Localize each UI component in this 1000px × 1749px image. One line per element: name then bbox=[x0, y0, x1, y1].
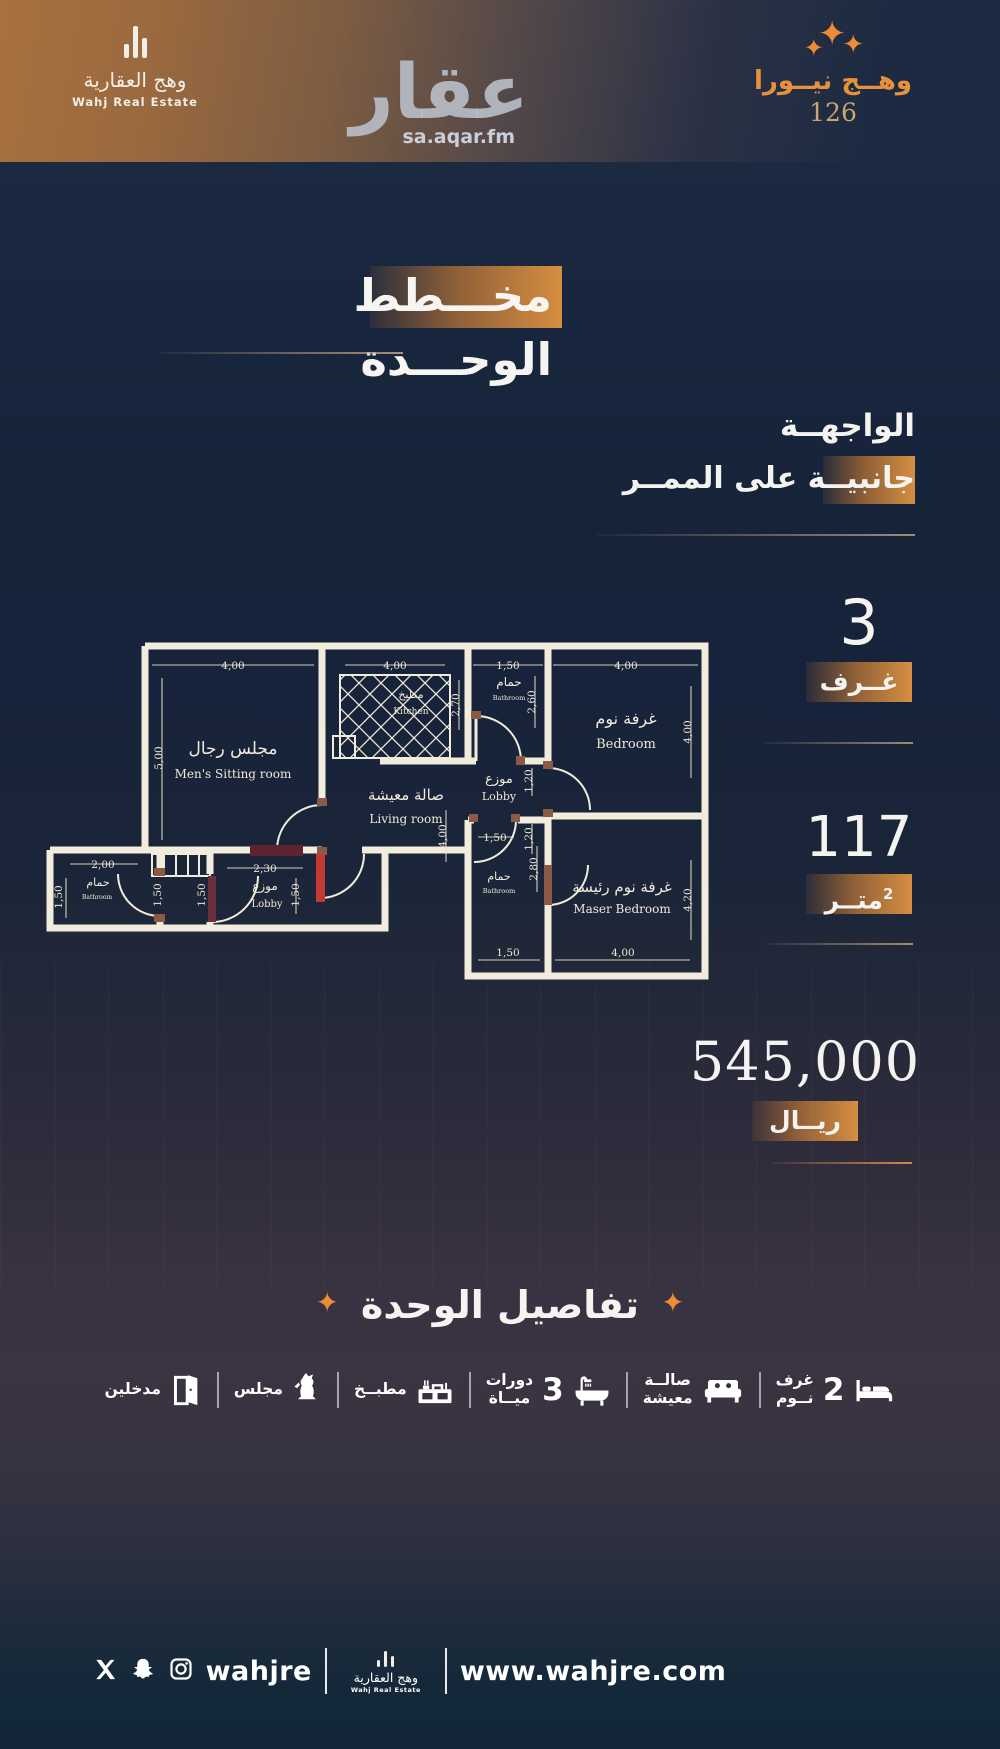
aqar-watermark: عقار sa.aqar.fm bbox=[350, 56, 515, 146]
dim-bedroom-height: 4,00 bbox=[682, 720, 694, 743]
detail-count: 2 bbox=[823, 1372, 845, 1408]
dim-stairs-left: 1,50 bbox=[152, 883, 164, 906]
stat-area: 117 2متــر bbox=[803, 810, 915, 914]
footer-brand-ar: وهج العقارية bbox=[340, 1670, 432, 1685]
detail-label: مجلس bbox=[234, 1381, 283, 1399]
room-sitting-en: Men's Sitting room bbox=[175, 767, 292, 781]
brand-name-ar: وهج العقارية bbox=[55, 68, 215, 92]
dim-sitting-height: 5,00 bbox=[153, 746, 165, 769]
details-heading: ✦تفاصيل الوحدة✦ bbox=[0, 1283, 1000, 1327]
dim-bath-top-width: 1,50 bbox=[496, 660, 519, 672]
room-living-en: Living room bbox=[369, 812, 443, 826]
footer: wahjre وهج العقارية Wahj Real Estate www… bbox=[0, 1648, 820, 1694]
detail-item-living: صالــةمعيشة bbox=[643, 1372, 744, 1408]
dim-sitting-width: 4,00 bbox=[221, 660, 244, 672]
door-icon bbox=[170, 1373, 202, 1408]
dim-annex-lobby-height: 1,50 bbox=[290, 883, 302, 906]
footer-divider bbox=[325, 1648, 327, 1694]
stat-divider-1 bbox=[763, 742, 913, 744]
dim-stairs-right: 1,50 bbox=[196, 883, 208, 906]
detail-label: معيشة bbox=[643, 1390, 693, 1408]
floor-plan: 4,00 4,00 1,50 4,00 5,00 2,70 2,60 4,00 … bbox=[40, 628, 720, 988]
detail-divider bbox=[759, 1372, 761, 1408]
detail-label: مدخلين bbox=[105, 1381, 161, 1399]
detail-item-entrances: مدخلين bbox=[105, 1373, 202, 1408]
kitchen-icon bbox=[416, 1374, 454, 1407]
area-unit: 2متــر bbox=[806, 874, 912, 914]
master-door-leaf bbox=[544, 865, 552, 905]
wahj-bars-icon bbox=[340, 1649, 432, 1667]
dim-lobby-upper: 1,20 bbox=[523, 769, 535, 792]
project-name: وهــج نيــورا bbox=[748, 66, 918, 96]
website-link[interactable]: www.wahjre.com bbox=[460, 1656, 727, 1687]
room-living-ar: صالة معيشة bbox=[368, 786, 444, 804]
room-master-en: Maser Bedroom bbox=[573, 902, 671, 916]
room-bath-top-en: Bathroom bbox=[493, 694, 526, 702]
background-streaks bbox=[0, 960, 1000, 1290]
dim-kitchen-width: 4,00 bbox=[383, 660, 406, 672]
detail-count: 3 bbox=[542, 1372, 564, 1408]
detail-item-bedrooms: 2 غرفنــوم bbox=[776, 1372, 896, 1408]
room-bath-top-ar: حمام bbox=[496, 675, 521, 689]
footer-brand-en: Wahj Real Estate bbox=[340, 1686, 432, 1694]
detail-label: مطبــخ bbox=[354, 1381, 407, 1399]
room-lobby-annex-en: Lobby bbox=[251, 899, 282, 910]
bed-icon bbox=[853, 1375, 895, 1405]
door-lintel bbox=[250, 845, 303, 856]
detail-label: غرف bbox=[776, 1372, 814, 1390]
page-title-text: مخـــطط الوحـــدة bbox=[158, 264, 562, 330]
facade-underline bbox=[597, 534, 915, 536]
header-band: وهج العقارية Wahj Real Estate عقار sa.aq… bbox=[0, 0, 1000, 162]
stat-rooms: 3 غــرف bbox=[803, 592, 915, 702]
social-handle[interactable]: wahjre bbox=[206, 1656, 312, 1687]
footer-divider bbox=[445, 1648, 447, 1694]
dallah-icon bbox=[292, 1372, 322, 1408]
detail-label: نــوم bbox=[776, 1390, 814, 1408]
dim-bath-top-left: 2,70 bbox=[450, 693, 462, 716]
detail-item-baths: 3 دوراتميــاة bbox=[486, 1372, 611, 1408]
project-number: 126 bbox=[748, 98, 918, 127]
room-lobby-ar: موزع bbox=[485, 772, 513, 787]
detail-divider bbox=[469, 1372, 471, 1408]
dim-annex-bath-width: 2,00 bbox=[91, 859, 114, 871]
title-underline bbox=[160, 352, 403, 354]
aqar-logo-text: عقار bbox=[350, 56, 515, 128]
stat-divider-2 bbox=[765, 943, 913, 945]
snapchat-icon[interactable] bbox=[130, 1656, 156, 1686]
detail-divider bbox=[217, 1372, 219, 1408]
rooms-count: 3 bbox=[803, 592, 915, 654]
dim-lobby-lower: 1,20 bbox=[523, 827, 535, 850]
dim-bedroom-width: 4,00 bbox=[614, 660, 637, 672]
detail-label: صالــة bbox=[643, 1372, 693, 1390]
sparkle-stars-icon: ✦✦✦ bbox=[748, 10, 918, 62]
detail-divider bbox=[337, 1372, 339, 1408]
detail-divider bbox=[626, 1372, 628, 1408]
facade-value: جانبيــة على الممــر bbox=[585, 456, 915, 504]
details-row: 2 غرفنــوم صالــةمعيشة 3 دوراتميــاة مطب… bbox=[0, 1372, 1000, 1408]
brand-logo: وهج العقارية Wahj Real Estate bbox=[55, 22, 215, 109]
bathtub-icon bbox=[573, 1374, 611, 1407]
dim-annex-lobby-width: 2,30 bbox=[253, 863, 276, 875]
area-value: 117 bbox=[803, 810, 915, 866]
detail-item-majlis: مجلس bbox=[234, 1372, 322, 1408]
rooms-unit: غــرف bbox=[806, 662, 912, 702]
red-door-leaf bbox=[316, 854, 325, 902]
detail-label: ميــاة bbox=[486, 1390, 533, 1408]
facade-block: الواجهــة جانبيــة على الممــر bbox=[585, 408, 915, 504]
room-master-ar: غرفة نوم رئيسة bbox=[572, 878, 672, 896]
room-bath-annex-ar: حمام bbox=[86, 876, 109, 889]
sofa-icon bbox=[702, 1375, 744, 1405]
diamond-icon: ✦ bbox=[315, 1286, 338, 1319]
brand-name-en: Wahj Real Estate bbox=[55, 95, 215, 109]
room-kitchen-en: Kitchen bbox=[393, 707, 428, 717]
dim-annex-bath-height: 1,50 bbox=[53, 885, 65, 908]
dim-master-width: 4,00 bbox=[611, 947, 634, 959]
dim-master-height: 4,20 bbox=[682, 888, 694, 911]
diamond-icon: ✦ bbox=[661, 1286, 684, 1319]
room-bedroom-en: Bedroom bbox=[596, 737, 656, 752]
area-sup: 2 bbox=[883, 885, 893, 903]
project-badge: ✦✦✦ وهــج نيــورا 126 bbox=[748, 10, 918, 127]
room-bedroom-ar: غرفة نوم bbox=[595, 709, 656, 729]
annex-door-leaf bbox=[208, 876, 216, 922]
room-lobby-en: Lobby bbox=[482, 790, 517, 803]
room-kitchen-ar: مطبخ bbox=[398, 688, 423, 701]
room-lobby-annex-ar: موزع bbox=[252, 879, 278, 894]
footer-brand-logo: وهج العقارية Wahj Real Estate bbox=[340, 1649, 432, 1694]
dim-bottom-small: 1,50 bbox=[496, 947, 519, 959]
dim-bath-bottom-width: 1,50 bbox=[483, 832, 506, 844]
detail-item-kitchen: مطبــخ bbox=[354, 1374, 454, 1407]
dim-bath-bottom-height: 2,80 bbox=[528, 857, 540, 880]
dim-bath-top-right: 2,60 bbox=[526, 690, 538, 713]
room-bath-annex-en: Bathroom bbox=[82, 894, 112, 901]
wahj-bars-icon bbox=[55, 22, 215, 58]
detail-label: دورات bbox=[486, 1372, 533, 1390]
flyer-page: وهج العقارية Wahj Real Estate عقار sa.aq… bbox=[0, 0, 1000, 1749]
instagram-icon[interactable] bbox=[169, 1657, 193, 1685]
x-icon[interactable] bbox=[94, 1658, 117, 1685]
page-title: مخـــطط الوحـــدة bbox=[158, 264, 562, 330]
dim-living-height: 4,00 bbox=[437, 824, 449, 847]
room-sitting-ar: مجلس رجال bbox=[188, 739, 277, 759]
room-bath-bottom-ar: حمام bbox=[487, 870, 510, 883]
facade-label: الواجهــة bbox=[585, 408, 915, 444]
room-bath-bottom-en: Bathroom bbox=[483, 887, 516, 895]
